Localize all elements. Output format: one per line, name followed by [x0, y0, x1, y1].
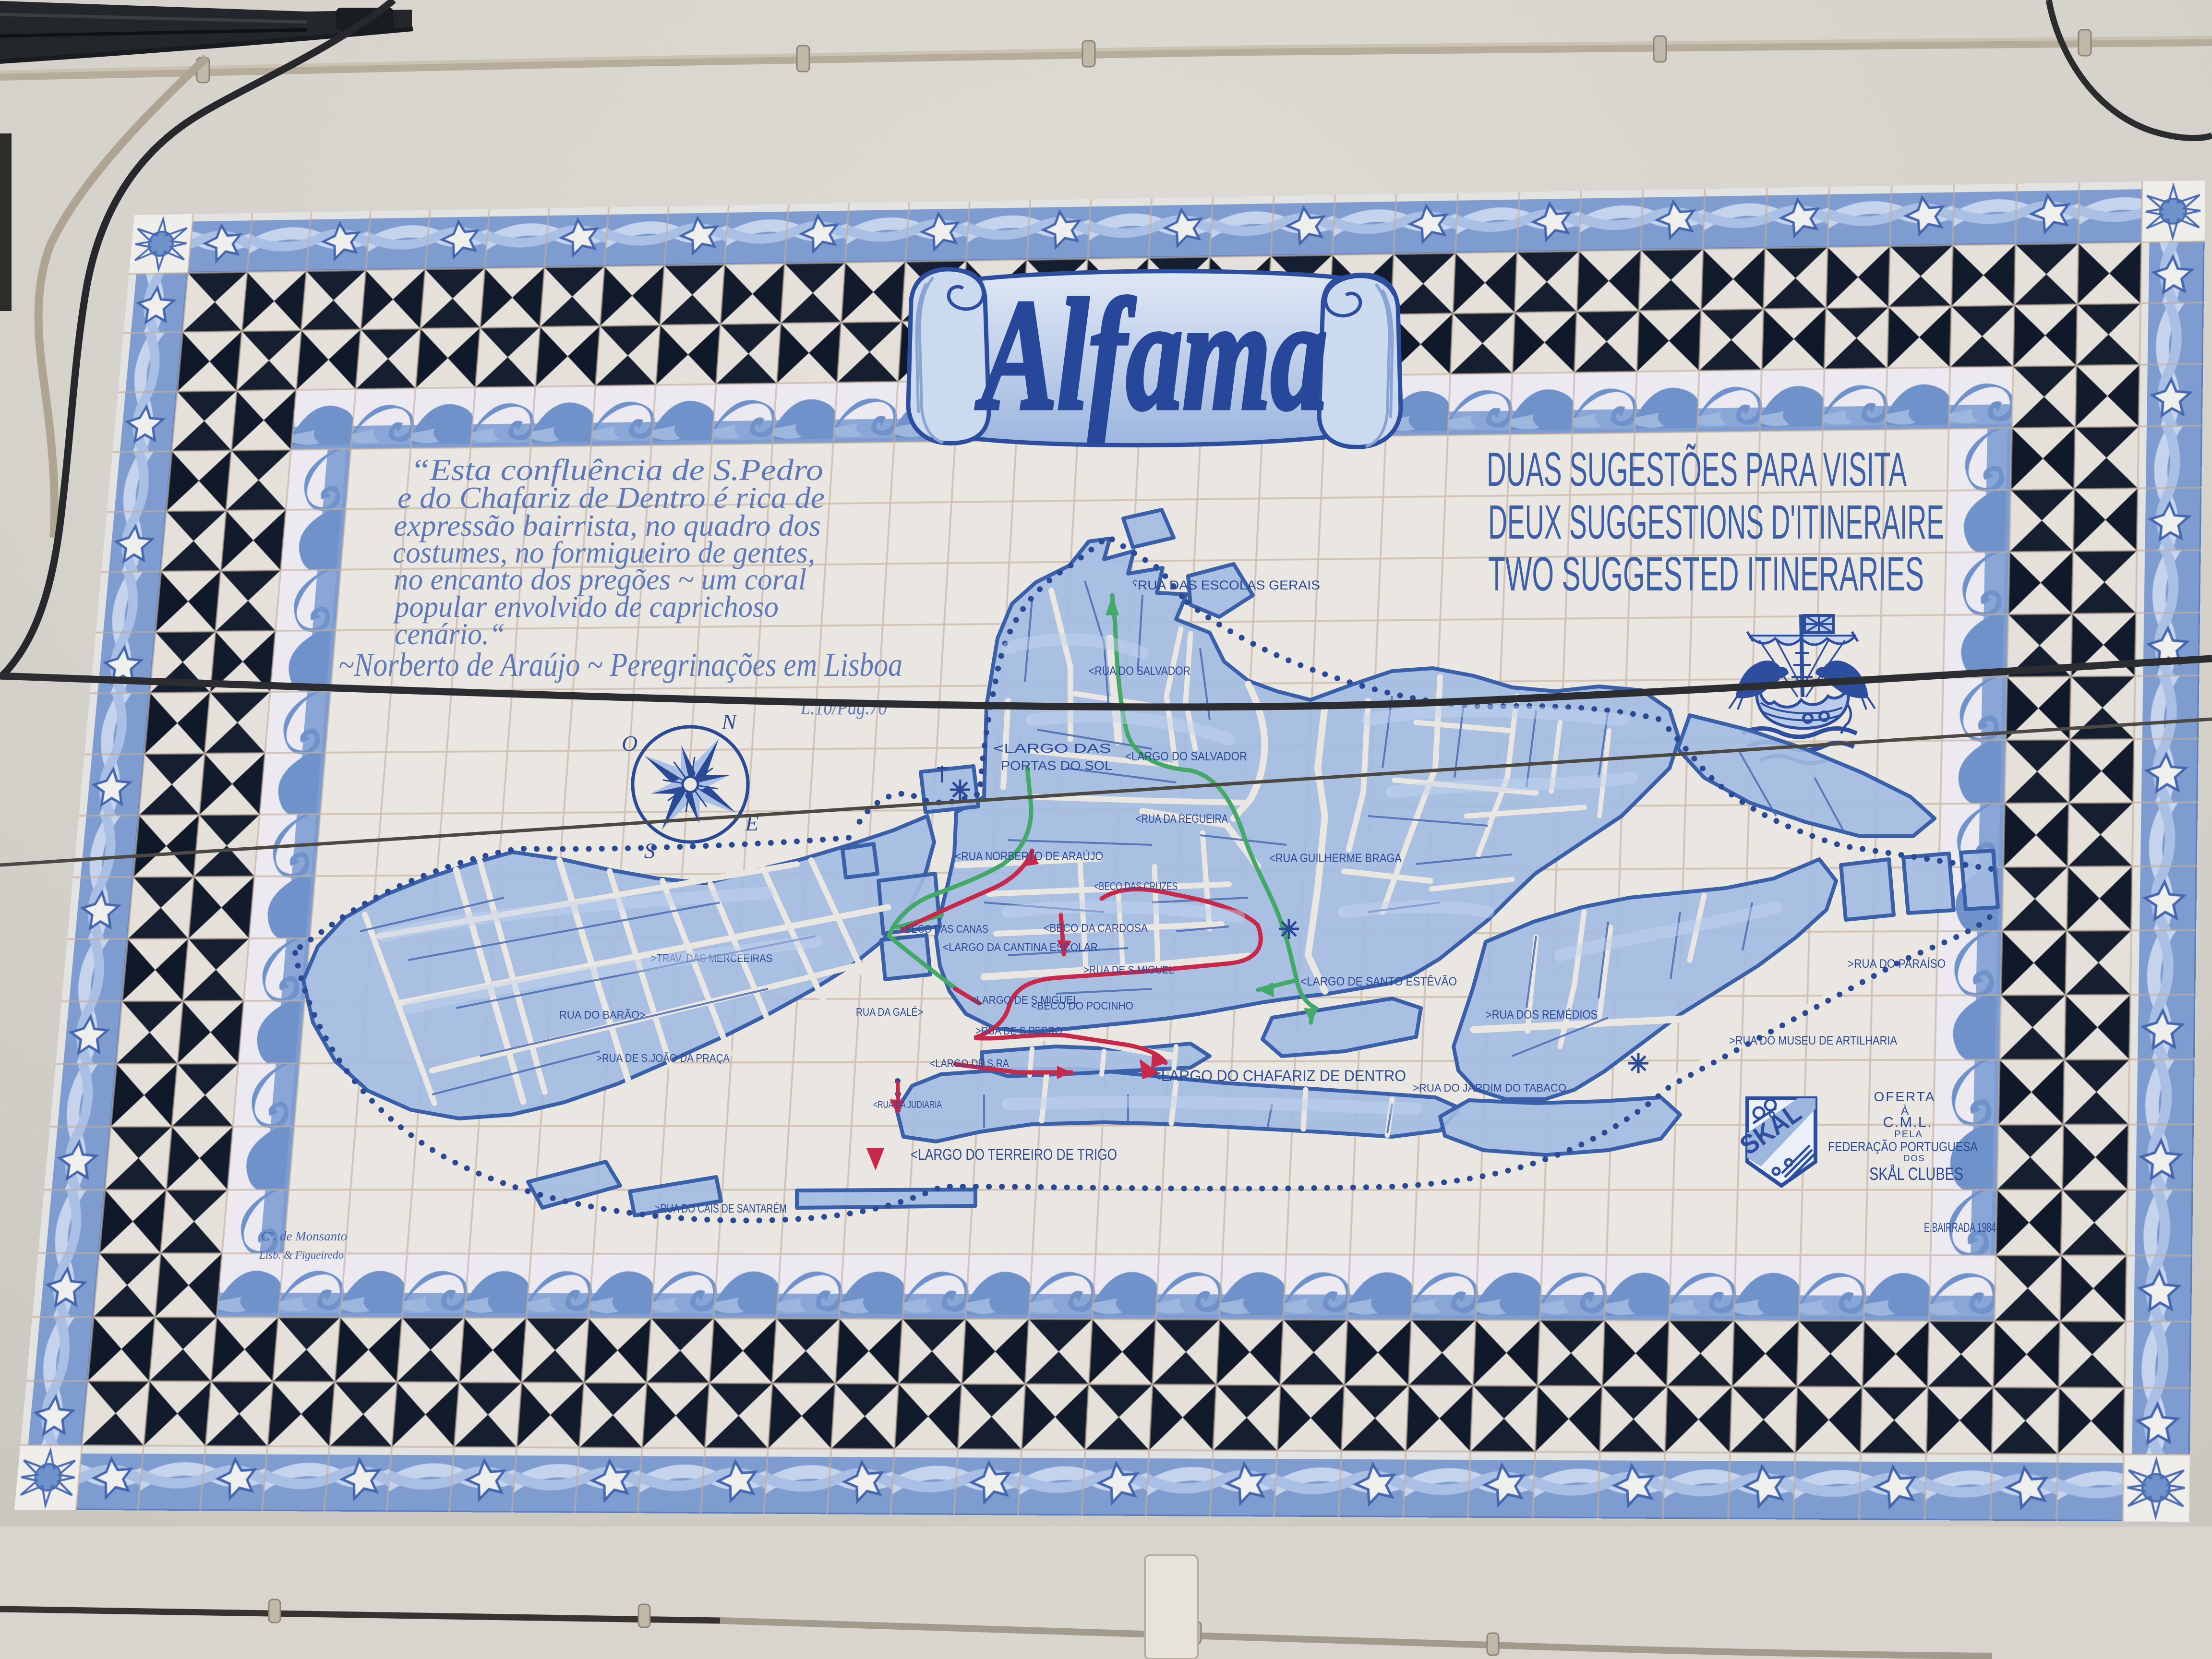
svg-text:DUAS SUGESTÕES PARA VISITA: DUAS SUGESTÕES PARA VISITA [1487, 443, 1907, 496]
svg-text:PELA: PELA [1894, 1129, 1923, 1140]
svg-text:C.M.L.: C.M.L. [1883, 1114, 1932, 1130]
svg-text:˂BECO DAS CRUZES: ˂BECO DAS CRUZES [1094, 880, 1178, 892]
svg-text:Lisb. & Figueiredo: Lisb. & Figueiredo [259, 1249, 344, 1261]
svg-text:˂LARGO DO TERREIRO DE TRIGO: ˂LARGO DO TERREIRO DE TRIGO [911, 1146, 1117, 1163]
svg-text:˂LARGO DAS: ˂LARGO DAS [993, 741, 1111, 756]
svg-text:RUA DO BARÃO˃: RUA DO BARÃO˃ [559, 1009, 646, 1021]
svg-text:˂LARGO DA CANTINA ESCOLAR: ˂LARGO DA CANTINA ESCOLAR [943, 941, 1098, 953]
svg-text:˃RUA DO MUSEU DE ARTILHARIA: ˃RUA DO MUSEU DE ARTILHARIA [1729, 1034, 1897, 1047]
svg-text:˂RUA DA JUDIARIA: ˂RUA DA JUDIARIA [873, 1099, 942, 1110]
svg-text:˂BECO DO POCINHO: ˂BECO DO POCINHO [1031, 999, 1133, 1012]
svg-text:SKÅL CLUBES: SKÅL CLUBES [1869, 1164, 1963, 1184]
svg-text:˃RUA DO JARDIM DO TABACO: ˃RUA DO JARDIM DO TABACO [1413, 1082, 1566, 1094]
svg-text:˂RUA DO SALVADOR: ˂RUA DO SALVADOR [1089, 664, 1190, 678]
svg-text:˃RUA DOS REMÉDIOS: ˃RUA DOS REMÉDIOS [1486, 1008, 1598, 1022]
svg-text:˂LARGO DO SALVADOR: ˂LARGO DO SALVADOR [1125, 750, 1247, 763]
svg-text:˃RUA DO PARAÍSO: ˃RUA DO PARAÍSO [1848, 957, 1946, 971]
svg-text:ˁRUA DAS ESCOLAS GERAIS: ˁRUA DAS ESCOLAS GERAIS [1133, 578, 1320, 592]
svg-text:DEUX SUGGESTIONS D'ITINERAIRE: DEUX SUGGESTIONS D'ITINERAIRE [1488, 495, 1944, 549]
svg-text:˂RUA NORBERTO DE ARAÚJO: ˂RUA NORBERTO DE ARAÚJO [955, 849, 1103, 863]
svg-text:˃RUA DO CAIS DE SANTARÉM: ˃RUA DO CAIS DE SANTARÉM [655, 1202, 787, 1215]
svg-text:S: S [644, 839, 655, 863]
svg-text:˂RUA GUILHERME BRAGA: ˂RUA GUILHERME BRAGA [1269, 852, 1402, 865]
svg-text:˃RUA DE S.JOÃO DA PRAÇA: ˃RUA DE S.JOÃO DA PRAÇA [596, 1052, 730, 1064]
svg-text:Cª. de Monsanto: Cª. de Monsanto [261, 1229, 347, 1243]
svg-text:˃BECO DAS CANAS: ˃BECO DAS CANAS [900, 923, 988, 935]
svg-text:N: N [721, 709, 737, 734]
svg-text:Alfama: Alfama [974, 267, 1327, 443]
svg-text:OFERTA: OFERTA [1874, 1089, 1936, 1104]
svg-text:˂RUA DA REGUEIRA: ˂RUA DA REGUEIRA [1136, 812, 1228, 826]
svg-text:TWO SUGGESTED ITINERARIES: TWO SUGGESTED ITINERARIES [1488, 547, 1924, 601]
svg-text:˂LARGO DE S.RA: ˂LARGO DE S.RA [930, 1057, 1010, 1070]
svg-text:RUA DA GALÉ˃: RUA DA GALÉ˃ [856, 1006, 923, 1018]
svg-text:˃RUA DE S.MIGUEL: ˃RUA DE S.MIGUEL [1083, 963, 1174, 976]
svg-text:E.BAIRRADA 1984: E.BAIRRADA 1984 [1924, 1220, 1996, 1235]
svg-text:˃RUA DE S.PEDRO: ˃RUA DE S.PEDRO [975, 1024, 1062, 1037]
svg-text:O: O [622, 731, 637, 756]
svg-text:˂LARGO DE SANTO ESTÊVÃO: ˂LARGO DE SANTO ESTÊVÃO [1300, 974, 1457, 988]
svg-text:~Norberto de Araújo ~ Peregrin: ~Norberto de Araújo ~ Peregrinações em L… [338, 647, 902, 684]
svg-text:DOS: DOS [1903, 1154, 1925, 1163]
svg-text:FEDERAÇÃO PORTUGUESA: FEDERAÇÃO PORTUGUESA [1828, 1139, 1978, 1154]
svg-text:˂LARGO DO CHAFARIZ DE DENTRO: ˂LARGO DO CHAFARIZ DE DENTRO [1153, 1067, 1406, 1084]
svg-text:cenário.“: cenário.“ [395, 617, 505, 651]
svg-text:˂BECO DA CARDOSA: ˂BECO DA CARDOSA [1044, 922, 1148, 934]
svg-text:PORTAS DO SOL: PORTAS DO SOL [1001, 758, 1112, 773]
